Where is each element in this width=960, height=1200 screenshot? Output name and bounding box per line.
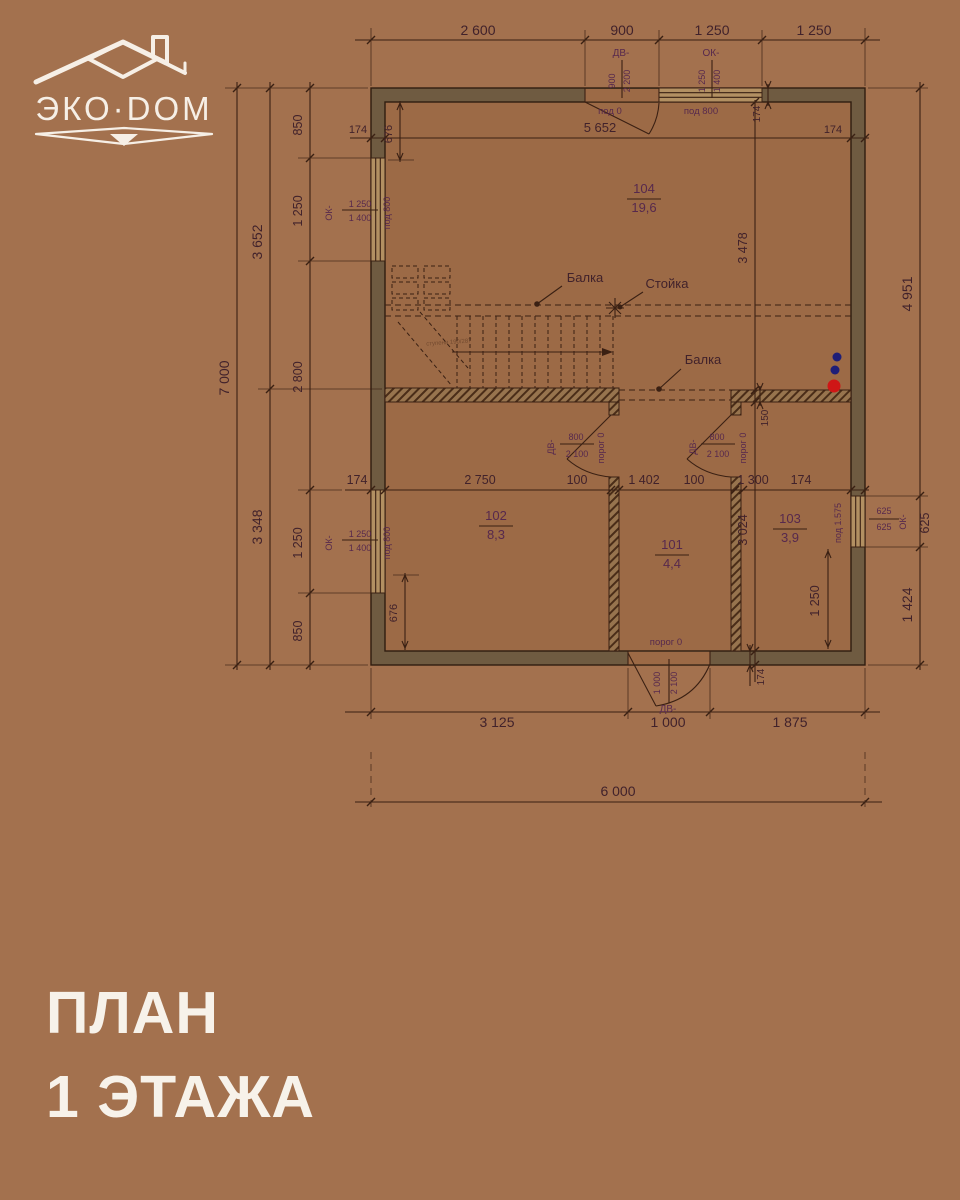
dim-label: 850 — [291, 115, 305, 136]
top-window — [659, 88, 762, 102]
dim-label: 1 250 — [796, 22, 831, 38]
dim-label: 174 — [756, 668, 767, 685]
opening-code: ОК- — [324, 205, 334, 220]
dim-label: 1 250 — [694, 22, 729, 38]
opening-width: 800 — [709, 432, 724, 442]
opening-width: 900 — [607, 73, 617, 88]
dim-label: 7 000 — [216, 360, 232, 395]
dim-label: 3 024 — [736, 514, 750, 545]
sill-label: под 800 — [684, 106, 718, 117]
dim-label: 100 — [684, 473, 705, 487]
sill-label: порог 0 — [738, 433, 748, 464]
dim-label: 900 — [610, 22, 634, 38]
dim-label: 1 000 — [650, 714, 685, 730]
dim-label: 625 — [918, 513, 932, 534]
opening-code: ДВ- — [688, 439, 698, 454]
dim-label: 676 — [383, 125, 395, 143]
room-area: 19,6 — [631, 200, 656, 215]
sill-label: под 1.575 — [833, 503, 843, 543]
dim-label: 174 — [791, 473, 812, 487]
opening-width: 1 250 — [697, 70, 707, 93]
dim-label: 174 — [824, 124, 842, 136]
sill-label: под 0 — [598, 106, 622, 117]
room-area: 4,4 — [663, 556, 681, 571]
dim-label: 174 — [349, 124, 367, 136]
floor-plan: ступени 190/287 2 600 900 — [0, 0, 960, 860]
dim-label: 4 951 — [899, 276, 915, 311]
opening-code: ОК- — [703, 48, 720, 59]
opening-code: ОК- — [898, 514, 908, 529]
dim-label: 676 — [388, 604, 400, 622]
opening-width: 625 — [876, 506, 891, 516]
opening-code: ДВ- — [546, 439, 556, 454]
dim-label: 1 875 — [772, 714, 807, 730]
poster: ЭКО·DOM — [0, 0, 960, 1200]
dim-label: 174 — [752, 105, 763, 122]
opening-code: ОК- — [324, 535, 334, 550]
sill-label: под 800 — [382, 527, 392, 559]
opening-height: 2 200 — [622, 70, 632, 93]
title-line-1: ПЛАН — [46, 972, 315, 1056]
opening-height: 2 100 — [669, 672, 679, 695]
sill-label: порог 0 — [650, 637, 682, 648]
dim-label: 150 — [760, 409, 771, 426]
page-title: ПЛАН 1 ЭТАЖА — [46, 972, 315, 1140]
room-number: 104 — [633, 181, 655, 196]
sill-label: под 800 — [382, 197, 392, 229]
dim-label: 1 300 — [737, 473, 768, 487]
dim-label: 6 000 — [600, 783, 635, 799]
dim-label: 1 402 — [628, 473, 659, 487]
room-number: 103 — [779, 511, 801, 526]
dim-label: 3 125 — [479, 714, 514, 730]
beam-callout: Балка — [567, 270, 604, 285]
opening-code: ДВ- — [660, 704, 677, 715]
dim-label: 3 478 — [736, 232, 750, 263]
dim-label: 2 750 — [464, 473, 495, 487]
sill-label: порог 0 — [596, 433, 606, 464]
dim-label: 100 — [567, 473, 588, 487]
beam-callout: Балка — [685, 352, 722, 367]
opening-code: ДВ- — [613, 48, 630, 59]
dim-label: 1 250 — [291, 527, 305, 558]
opening-height: 2 100 — [566, 449, 589, 459]
dim-label: 3 348 — [249, 509, 265, 544]
dim-label: 2 800 — [291, 361, 305, 392]
dim-label: 1 250 — [291, 195, 305, 226]
opening-height: 1 400 — [712, 70, 722, 93]
dim-label: 1 424 — [899, 587, 915, 622]
opening-height: 2 100 — [707, 449, 730, 459]
dim-label: 2 600 — [460, 22, 495, 38]
opening-width: 800 — [568, 432, 583, 442]
room-number: 101 — [661, 537, 683, 552]
opening-width: 1 250 — [349, 529, 372, 539]
dim-label: 5 652 — [584, 120, 617, 135]
opening-height: 625 — [876, 522, 891, 532]
dim-label: 1 250 — [808, 585, 822, 616]
opening-height: 1 400 — [349, 543, 372, 553]
opening-width: 1 000 — [652, 672, 662, 695]
post-callout: Стойка — [646, 276, 690, 291]
room-area: 8,3 — [487, 527, 505, 542]
room-number: 102 — [485, 508, 507, 523]
title-line-2: 1 ЭТАЖА — [46, 1056, 315, 1140]
dim-label: 850 — [291, 621, 305, 642]
dim-label: 174 — [347, 473, 368, 487]
dim-label: 3 652 — [249, 224, 265, 259]
room-area: 3,9 — [781, 530, 799, 545]
right-window — [851, 496, 865, 547]
opening-height: 1 400 — [349, 213, 372, 223]
opening-width: 1 250 — [349, 199, 372, 209]
